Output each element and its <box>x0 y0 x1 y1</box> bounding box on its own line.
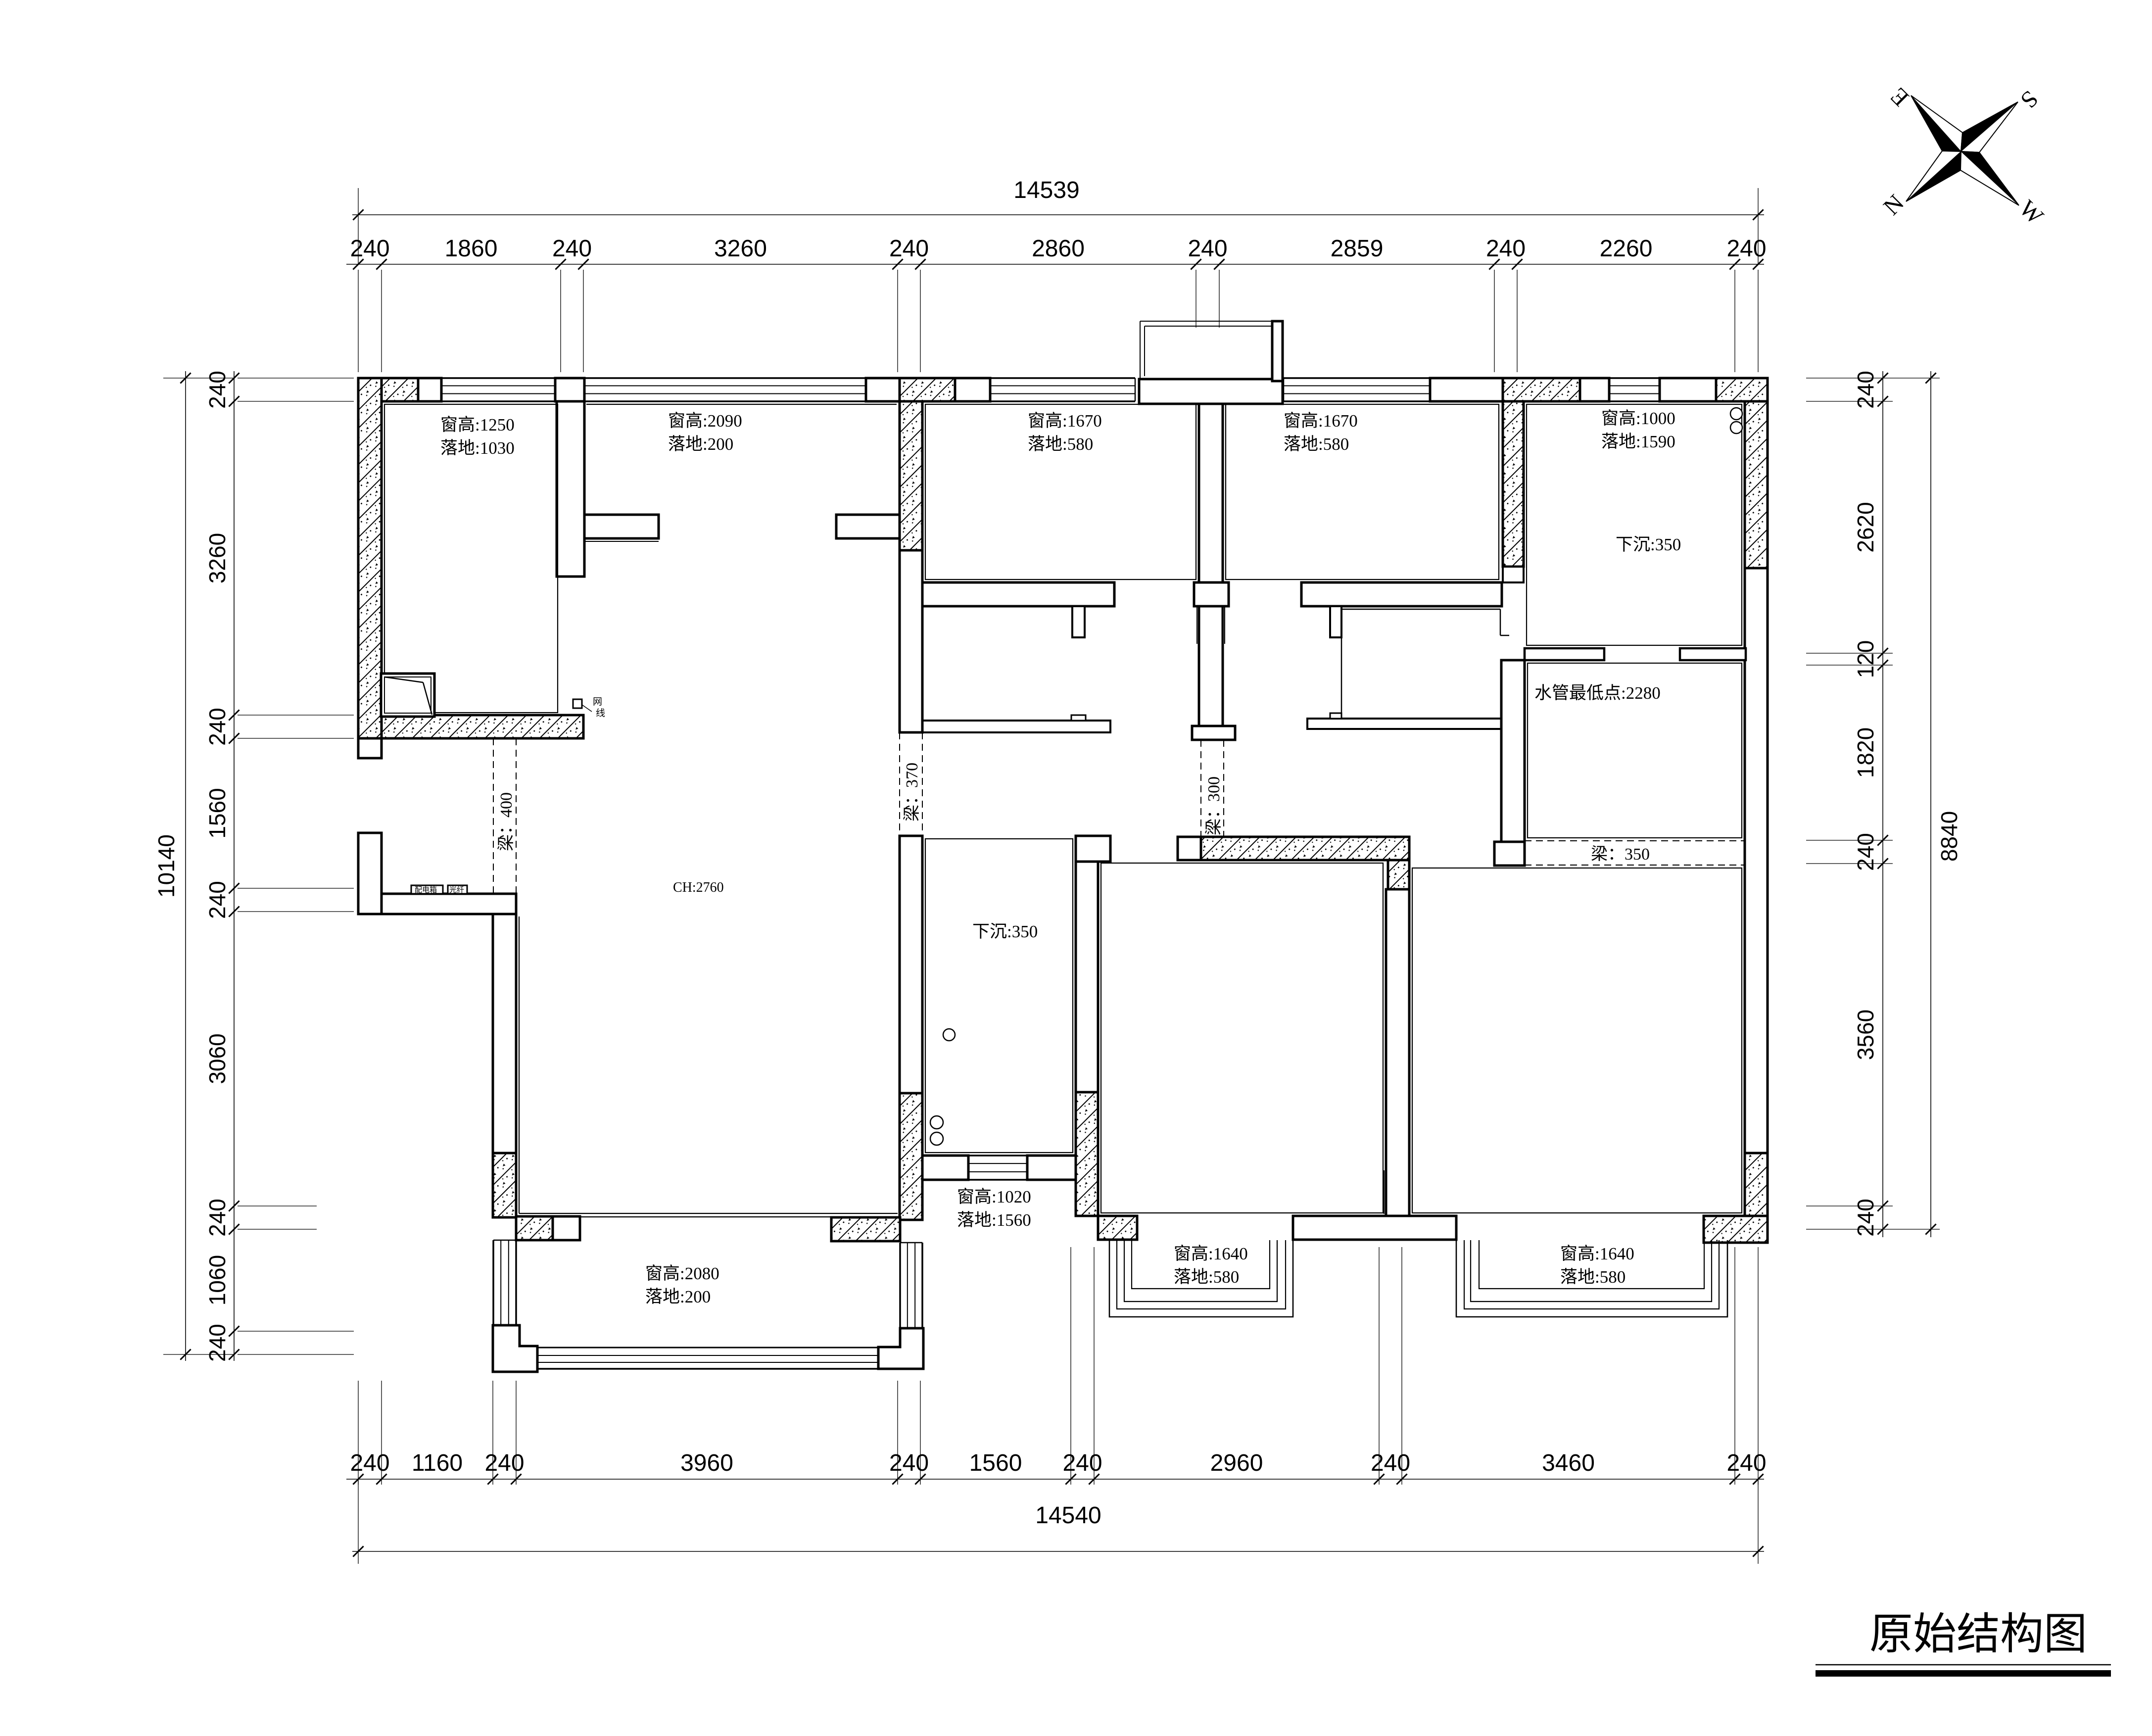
svg-text:2860: 2860 <box>1032 236 1085 262</box>
svg-text:3060: 3060 <box>204 1033 230 1084</box>
svg-text:240: 240 <box>484 1450 524 1476</box>
svg-text:1560: 1560 <box>969 1450 1022 1476</box>
svg-text:S: S <box>2015 86 2043 113</box>
svg-text:窗高:1000: 窗高:1000 <box>1601 409 1675 428</box>
svg-text:窗高:1640: 窗高:1640 <box>1174 1244 1248 1263</box>
svg-text:240: 240 <box>204 1324 230 1362</box>
svg-text:240: 240 <box>1062 1450 1102 1476</box>
svg-text:3260: 3260 <box>204 533 230 583</box>
svg-text:E: E <box>1885 83 1914 111</box>
svg-text:光纤: 光纤 <box>449 886 464 894</box>
svg-text:梁：400: 梁：400 <box>497 792 516 851</box>
svg-text:落地:580: 落地:580 <box>1174 1267 1239 1287</box>
svg-text:240: 240 <box>204 881 230 919</box>
svg-text:梁：300: 梁：300 <box>1204 776 1223 835</box>
svg-text:窗高:1670: 窗高:1670 <box>1028 411 1102 431</box>
svg-text:落地:200: 落地:200 <box>645 1287 711 1306</box>
svg-text:窗高:2090: 窗高:2090 <box>668 411 742 431</box>
svg-text:1820: 1820 <box>1853 727 1878 778</box>
svg-text:落地:580: 落地:580 <box>1284 434 1349 454</box>
svg-text:240: 240 <box>350 1450 389 1476</box>
svg-text:3960: 3960 <box>680 1450 733 1476</box>
svg-text:14540: 14540 <box>1035 1502 1101 1529</box>
svg-text:120: 120 <box>1853 640 1878 678</box>
svg-text:2859: 2859 <box>1331 236 1384 262</box>
svg-text:窗高:1640: 窗高:1640 <box>1560 1244 1634 1263</box>
svg-text:8840: 8840 <box>1936 811 1962 862</box>
svg-text:配电箱: 配电箱 <box>415 886 437 894</box>
svg-text:窗高:2080: 窗高:2080 <box>645 1264 719 1283</box>
svg-text:落地:1590: 落地:1590 <box>1601 432 1675 451</box>
svg-text:3460: 3460 <box>1542 1450 1595 1476</box>
svg-text:240: 240 <box>889 1450 929 1476</box>
svg-text:梁：370: 梁：370 <box>903 763 921 821</box>
svg-text:240: 240 <box>1188 236 1227 262</box>
svg-text:240: 240 <box>552 236 592 262</box>
svg-text:2620: 2620 <box>1853 502 1878 552</box>
svg-text:240: 240 <box>1853 371 1878 409</box>
svg-text:1060: 1060 <box>204 1255 230 1305</box>
svg-text:下沉:350: 下沉:350 <box>1616 535 1681 554</box>
svg-text:落地:580: 落地:580 <box>1560 1267 1626 1287</box>
svg-text:原始结构图: 原始结构图 <box>1869 1611 2087 1659</box>
svg-text:1160: 1160 <box>412 1450 463 1476</box>
svg-text:3560: 3560 <box>1853 1010 1878 1060</box>
svg-text:14539: 14539 <box>1013 177 1079 203</box>
svg-text:窗高:1670: 窗高:1670 <box>1284 411 1358 431</box>
svg-text:240: 240 <box>889 236 929 262</box>
svg-text:CH:2760: CH:2760 <box>673 880 724 895</box>
svg-text:水管最低点:2280: 水管最低点:2280 <box>1534 683 1661 703</box>
svg-text:窗高:1250: 窗高:1250 <box>440 415 515 434</box>
svg-text:落地:580: 落地:580 <box>1028 434 1093 454</box>
svg-text:下沉:350: 下沉:350 <box>972 922 1038 941</box>
svg-text:240: 240 <box>1486 236 1526 262</box>
svg-text:240: 240 <box>204 371 230 409</box>
svg-text:240: 240 <box>1371 1450 1410 1476</box>
svg-text:240: 240 <box>204 1199 230 1237</box>
svg-text:240: 240 <box>1853 833 1878 871</box>
svg-text:1560: 1560 <box>204 788 230 838</box>
svg-text:10140: 10140 <box>153 834 179 898</box>
svg-text:240: 240 <box>204 708 230 746</box>
svg-text:W: W <box>2014 195 2049 230</box>
svg-text:网: 网 <box>593 697 602 707</box>
svg-text:2960: 2960 <box>1210 1450 1263 1476</box>
svg-text:窗高:1020: 窗高:1020 <box>957 1187 1031 1206</box>
svg-text:240: 240 <box>1726 236 1766 262</box>
svg-text:240: 240 <box>350 236 389 262</box>
svg-text:梁：350: 梁：350 <box>1591 845 1650 864</box>
svg-text:240: 240 <box>1853 1199 1878 1237</box>
svg-text:落地:200: 落地:200 <box>668 434 733 454</box>
svg-text:N: N <box>1878 190 1909 220</box>
svg-text:240: 240 <box>1726 1450 1766 1476</box>
svg-text:1860: 1860 <box>445 236 498 262</box>
svg-text:落地:1030: 落地:1030 <box>440 438 515 458</box>
svg-text:落地:1560: 落地:1560 <box>957 1210 1031 1230</box>
svg-text:线: 线 <box>596 708 605 719</box>
svg-text:2260: 2260 <box>1600 236 1653 262</box>
svg-text:3260: 3260 <box>714 236 767 262</box>
